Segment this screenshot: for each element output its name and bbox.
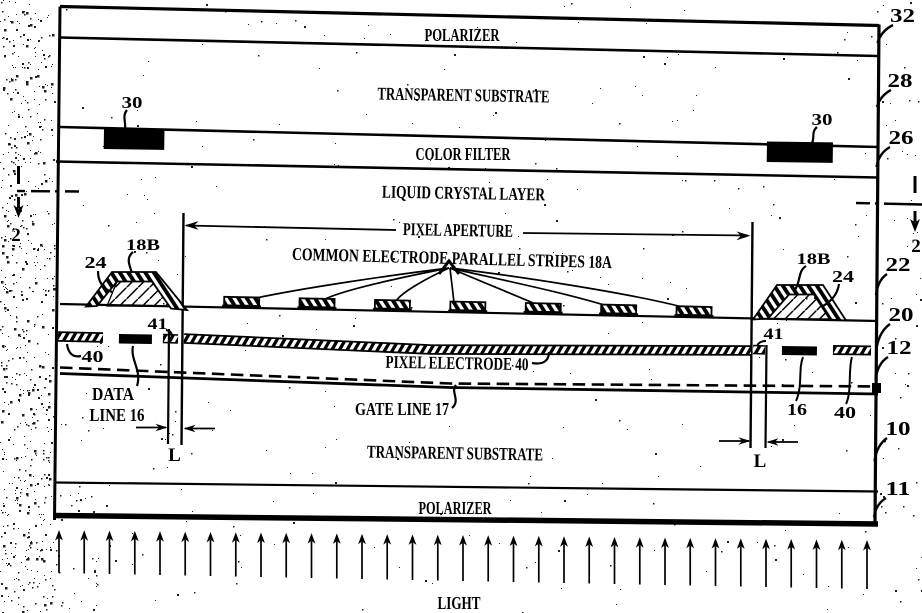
svg-text:2: 2 bbox=[911, 236, 921, 257]
svg-text:28: 28 bbox=[888, 70, 913, 92]
svg-text:DATA: DATA bbox=[92, 384, 134, 404]
svg-text:30: 30 bbox=[812, 110, 833, 129]
svg-text:24: 24 bbox=[832, 267, 855, 286]
svg-text:LIGHT: LIGHT bbox=[438, 593, 481, 613]
svg-text:20: 20 bbox=[889, 304, 914, 326]
svg-text:TRANSPARENT SUBSTRATE: TRANSPARENT SUBSTRATE bbox=[377, 84, 549, 107]
svg-text:TRANSPARENT SUBSTRATE: TRANSPARENT SUBSTRATE bbox=[367, 441, 543, 464]
svg-text:PIXEL ELECTRODE 40: PIXEL ELECTRODE 40 bbox=[385, 352, 528, 374]
svg-text:12: 12 bbox=[887, 337, 912, 359]
svg-text:L: L bbox=[168, 445, 181, 466]
svg-text:POLARIZER: POLARIZER bbox=[425, 25, 501, 45]
svg-text:COLOR FILTER: COLOR FILTER bbox=[416, 144, 512, 164]
svg-text:18B: 18B bbox=[126, 237, 160, 254]
svg-text:10: 10 bbox=[886, 418, 911, 440]
svg-text:LINE 16: LINE 16 bbox=[90, 405, 145, 425]
svg-text:41: 41 bbox=[148, 316, 168, 333]
svg-text:POLARIZER: POLARIZER bbox=[419, 498, 493, 518]
svg-text:32: 32 bbox=[890, 5, 915, 27]
svg-text:2: 2 bbox=[11, 225, 21, 246]
svg-text:16: 16 bbox=[787, 400, 807, 419]
svg-text:30: 30 bbox=[122, 93, 143, 112]
svg-text:41: 41 bbox=[764, 326, 784, 343]
svg-text:40: 40 bbox=[834, 403, 856, 422]
svg-text:24: 24 bbox=[85, 253, 108, 272]
svg-text:26: 26 bbox=[889, 127, 914, 149]
svg-text:GATE LINE 17: GATE LINE 17 bbox=[355, 399, 449, 419]
svg-text:L: L bbox=[754, 451, 767, 472]
svg-text:18B: 18B bbox=[797, 251, 831, 268]
svg-text:LIQUID CRYSTAL LAYER: LIQUID CRYSTAL LAYER bbox=[382, 182, 546, 205]
svg-text:11: 11 bbox=[886, 478, 911, 500]
svg-text:40: 40 bbox=[82, 347, 104, 366]
svg-text:PIXEL APERTURE: PIXEL APERTURE bbox=[403, 219, 513, 241]
svg-text:22: 22 bbox=[886, 254, 911, 276]
